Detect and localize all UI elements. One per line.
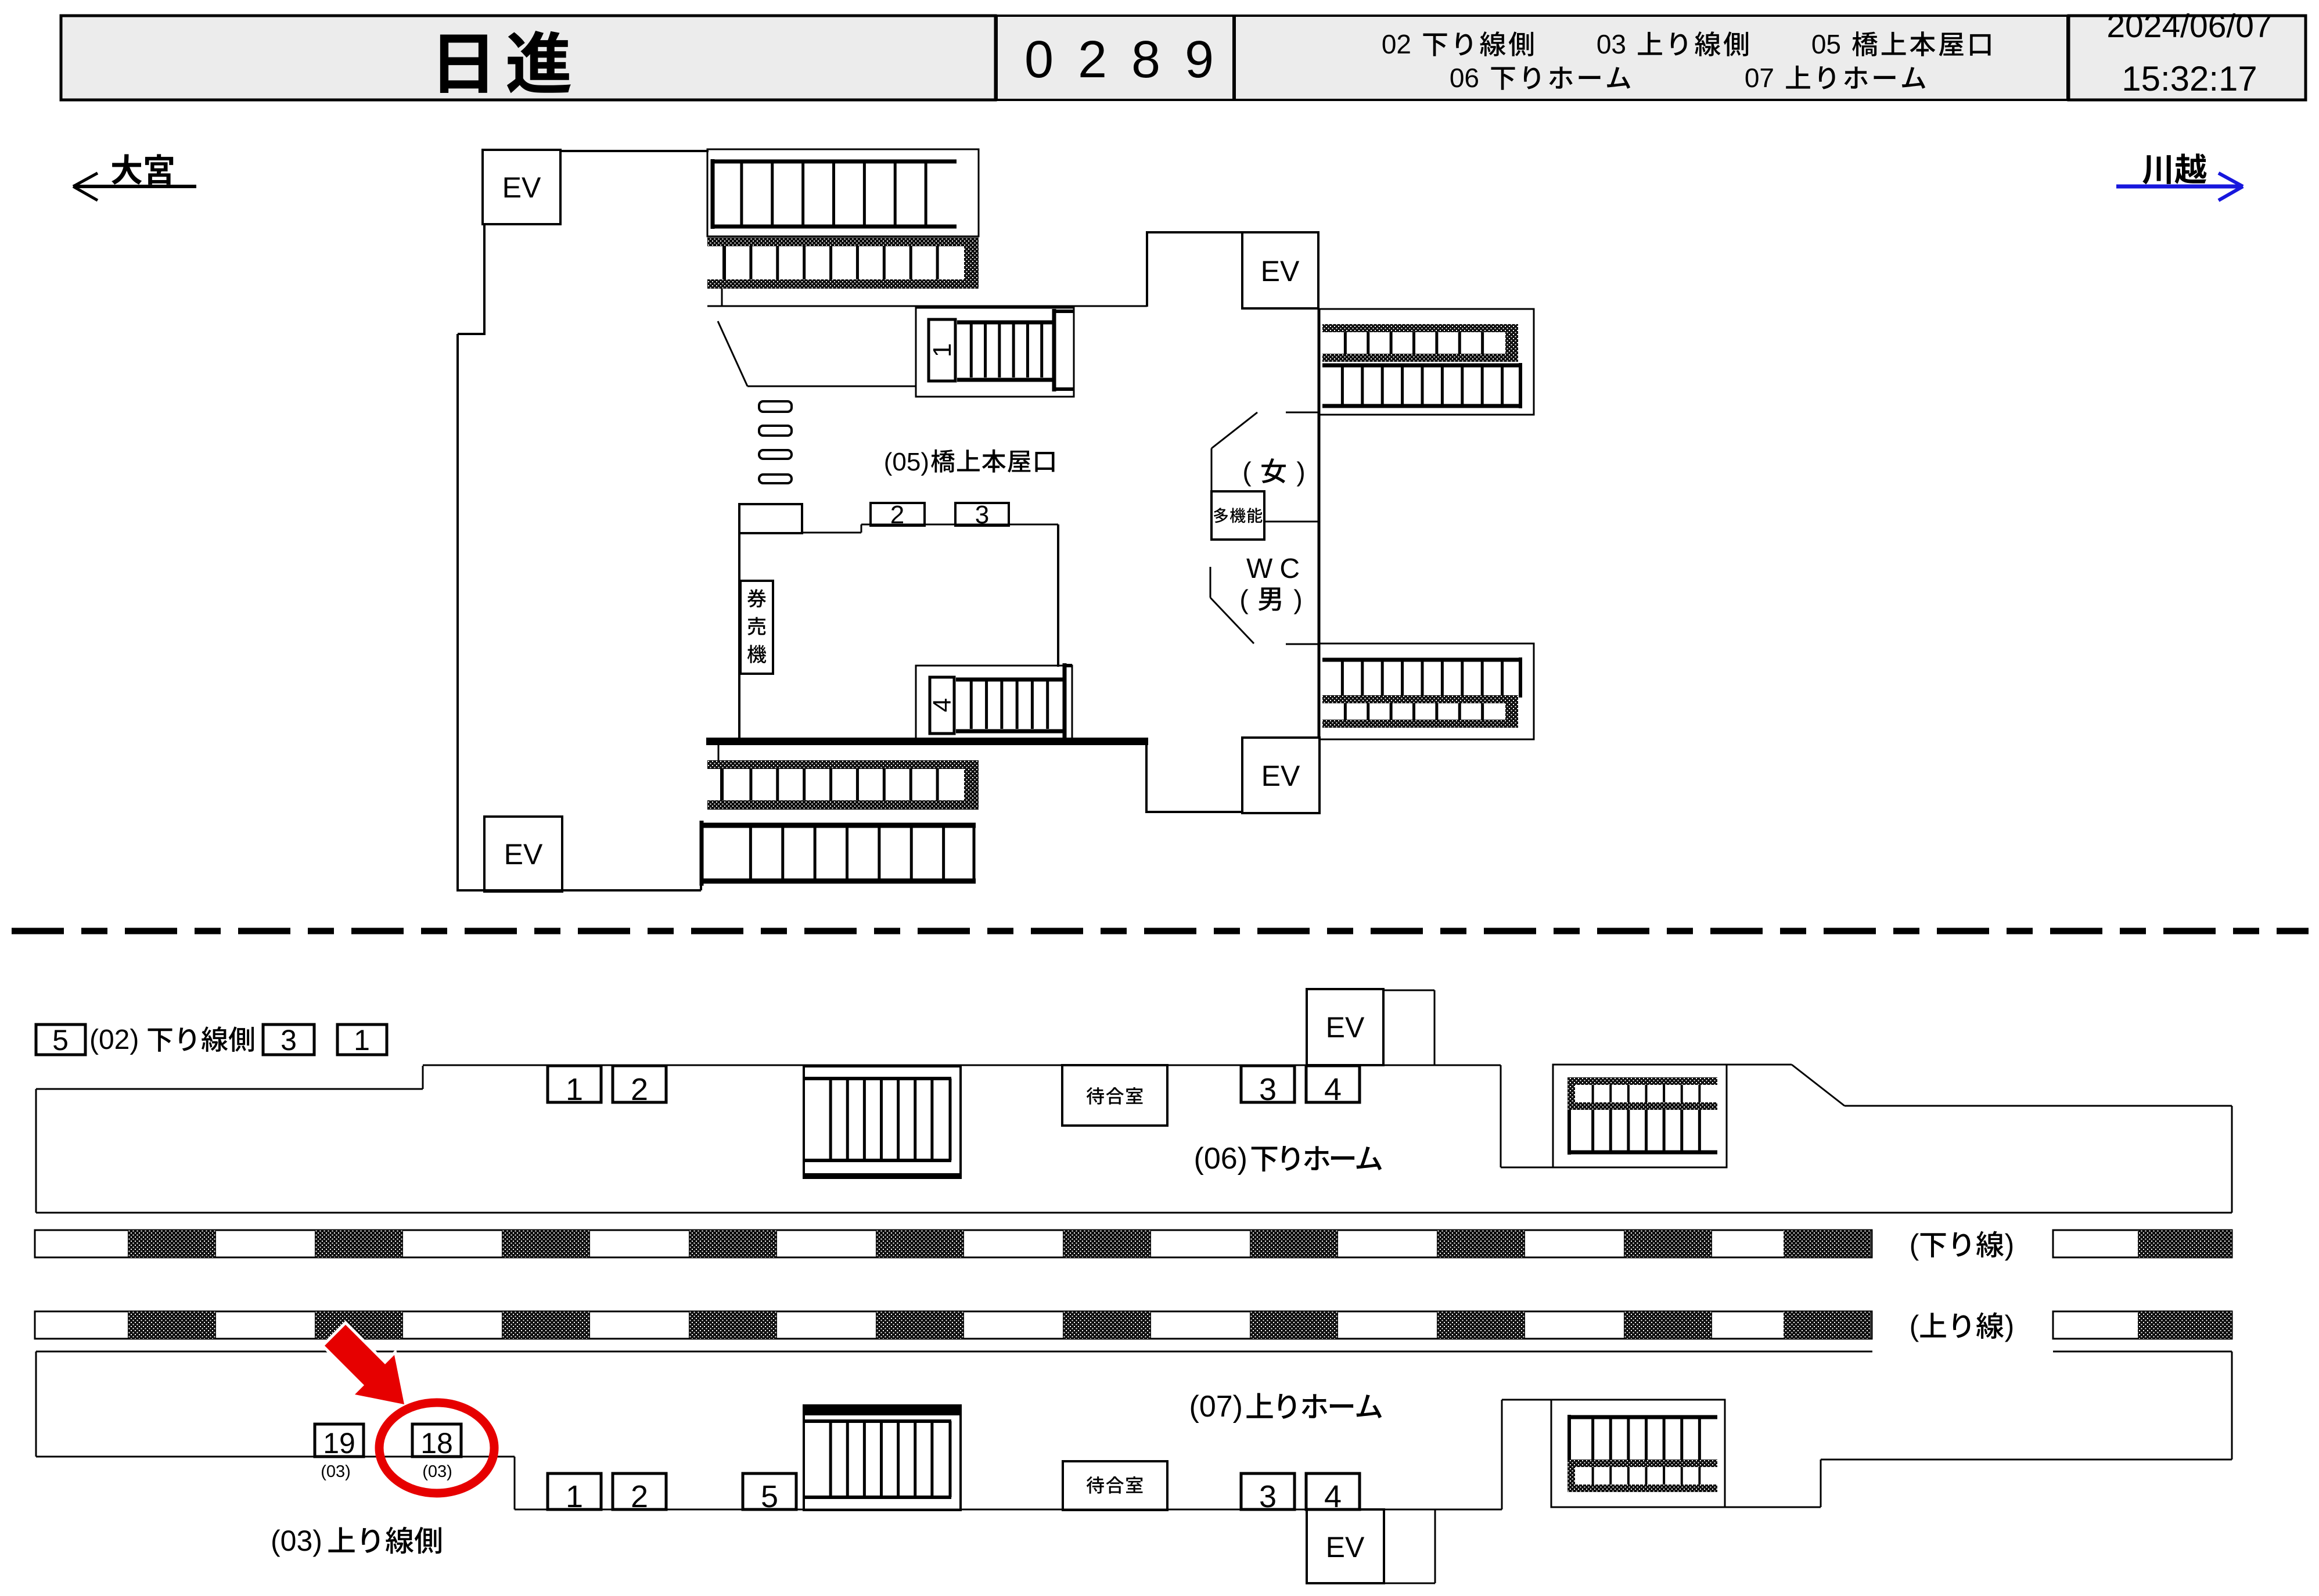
svg-text:2: 2 [890, 501, 904, 529]
svg-text:WC: WC [1246, 553, 1307, 584]
svg-text:(06): (06) [1194, 1142, 1247, 1176]
svg-text:2: 2 [631, 1072, 648, 1107]
svg-text:4: 4 [1324, 1072, 1342, 1107]
svg-text:(05): (05) [884, 448, 929, 476]
svg-text:(: ( [1910, 1228, 1919, 1261]
svg-text:(: ( [1910, 1310, 1919, 1342]
svg-text:3: 3 [281, 1024, 297, 1056]
svg-text:1: 1 [566, 1072, 583, 1107]
svg-text:5: 5 [761, 1479, 778, 1514]
svg-text:(07): (07) [1189, 1390, 1243, 1424]
svg-text:2: 2 [1078, 31, 1107, 89]
svg-text:): ) [2005, 1310, 2015, 1342]
svg-text:EV: EV [1261, 760, 1300, 792]
svg-text:4: 4 [928, 698, 957, 712]
svg-text:): ) [1293, 584, 1302, 614]
svg-text:(: ( [1242, 456, 1252, 487]
svg-text:02: 02 [1382, 29, 1411, 59]
svg-text:(: ( [1239, 584, 1249, 614]
svg-text:(03): (03) [321, 1462, 351, 1481]
svg-text:(02): (02) [89, 1025, 139, 1055]
svg-text:3: 3 [1259, 1479, 1277, 1514]
svg-text:2024/06/07: 2024/06/07 [2106, 8, 2272, 45]
svg-text:): ) [2005, 1228, 2015, 1261]
svg-text:3: 3 [975, 501, 989, 529]
svg-text:EV: EV [1261, 255, 1300, 287]
svg-text:5: 5 [52, 1024, 69, 1056]
svg-text:8: 8 [1131, 31, 1160, 89]
svg-text:9: 9 [1185, 31, 1214, 89]
svg-text:EV: EV [504, 838, 543, 871]
svg-text:EV: EV [1326, 1011, 1365, 1044]
svg-text:03: 03 [1597, 29, 1626, 59]
svg-text:): ) [1296, 456, 1305, 487]
svg-text:18: 18 [420, 1427, 453, 1460]
svg-text:06: 06 [1450, 63, 1479, 93]
svg-text:3: 3 [1259, 1072, 1277, 1107]
svg-text:15:32:17: 15:32:17 [2122, 59, 2257, 98]
svg-text:1: 1 [354, 1024, 370, 1056]
svg-text:1: 1 [928, 343, 957, 357]
svg-text:0: 0 [1024, 31, 1054, 89]
svg-text:(03): (03) [271, 1525, 322, 1557]
svg-text:EV: EV [502, 171, 541, 204]
svg-text:EV: EV [1326, 1531, 1365, 1563]
svg-text:05: 05 [1811, 29, 1841, 59]
svg-text:1: 1 [566, 1479, 583, 1514]
svg-text:07: 07 [1745, 63, 1774, 93]
svg-text:(03): (03) [422, 1462, 452, 1481]
svg-text:2: 2 [631, 1479, 648, 1514]
svg-text:19: 19 [323, 1427, 355, 1460]
